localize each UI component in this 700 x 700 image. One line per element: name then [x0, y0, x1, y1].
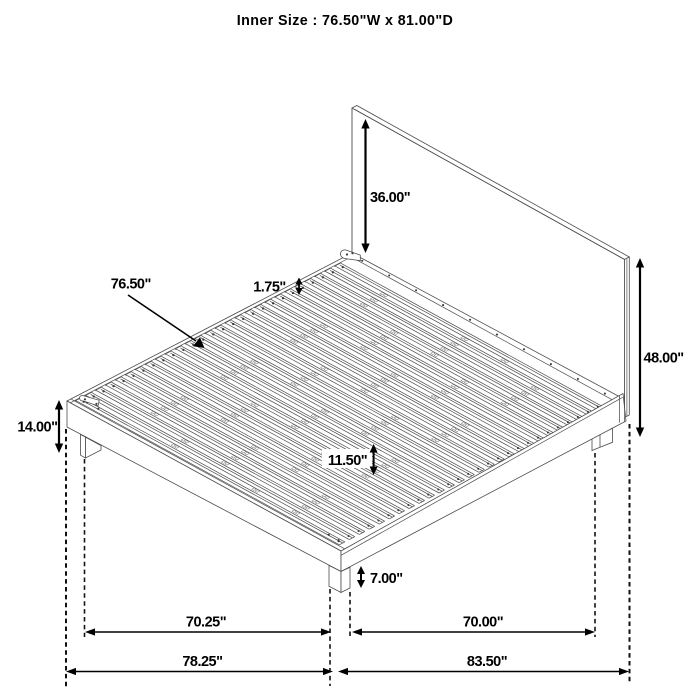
- svg-text:14.00": 14.00": [17, 420, 57, 436]
- svg-text:83.50": 83.50": [467, 654, 507, 670]
- svg-text:76.50": 76.50": [111, 277, 151, 293]
- svg-text:1.75": 1.75": [253, 280, 286, 296]
- svg-text:36.00": 36.00": [370, 190, 410, 206]
- svg-text:7.00": 7.00": [370, 571, 403, 587]
- svg-text:78.25": 78.25": [182, 654, 222, 670]
- svg-text:48.00": 48.00": [644, 351, 684, 367]
- svg-text:70.00": 70.00": [463, 615, 503, 631]
- svg-text:11.50": 11.50": [328, 453, 367, 469]
- svg-text:70.25": 70.25": [186, 615, 226, 631]
- svg-text:Inner Size : 76.50"W x 81.00"D: Inner Size : 76.50"W x 81.00"D: [237, 13, 453, 29]
